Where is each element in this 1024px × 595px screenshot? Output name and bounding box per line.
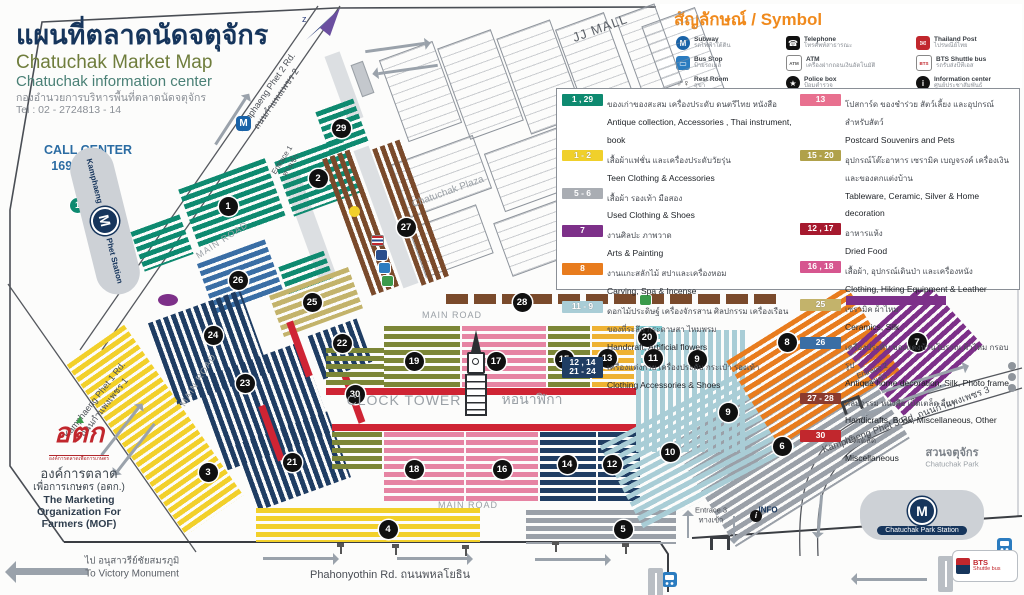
facility-chip-icon [376,250,387,260]
section-badge-27: 27 [397,218,416,237]
legend-badge: 12 , 17 [800,223,841,235]
legend-row: 27 - 28ศิลปกรรม หนังสือ เบ็ดเตล็ด อื่นๆH… [800,393,1014,429]
bts-shuttle-stop-badge: BTS Shuttle bus [952,550,1018,582]
mof-en1: The Marketing [26,494,132,506]
bus-stop-pole-icon [462,545,469,556]
section-badge-24: 24 [204,326,223,345]
pole-post [625,547,627,554]
mof-block: อตก องค์การตลาดเพื่อการเกษตร องค์การตลาด… [26,420,132,530]
compass-icon: z [300,6,344,48]
legend-text-en: Tableware, Ceramic, Silver & Home decora… [845,191,979,219]
oval-icon [158,294,178,306]
legend-text-th: ดอกไม้ประดิษฐ์ เครื่องจักรสาน ศิลปกรรม เ… [607,307,788,334]
legend-text-th: ของเก่าของสะสม เครื่องประดับ ดนตรีไทย หน… [607,100,777,109]
direction-arrow [263,557,333,560]
legend-row: 30เบ็ดเตล็ดMiscellaneous [800,430,1014,466]
market-section [332,424,636,431]
mof-th1: องค์การตลาด [26,467,132,482]
section-badge-14: 14 [558,455,577,474]
mrt-logo-icon: M [908,497,936,525]
victory-monument-en: To Victory Monument [85,569,179,580]
direction-arrow [733,516,735,538]
legend-text-en: Postcard Souvenirs and Pets [845,135,955,145]
legend-text-en: Arts & Painting [607,248,663,258]
legend-text-en: Carving, Spa & Incense [607,286,696,296]
arrow-head [424,37,432,50]
category-legend-left: 1 , 29ของเก่าของสะสม เครื่องประดับ ดนตรี… [562,94,794,287]
legend-text-en: Handcraft, Artificial flowers [607,342,707,352]
facility-chip-icon [382,276,393,286]
section-badge-26: 26 [229,271,248,290]
arrow-head [605,554,611,566]
legend-badge: 16 , 18 [800,261,841,273]
mrt-logo-icon: M [88,204,122,238]
bus-stop-pole-icon [392,544,399,555]
gate-icon [710,536,730,550]
bus-stop-pole-icon [552,541,559,552]
legend-badge: 1 , 29 [562,94,603,106]
legend-badge: 25 [800,299,841,311]
information-icon: i [750,510,762,522]
legend-row: 11 - 9ดอกไม้ประดิษฐ์ เครื่องจักรสาน ศิลป… [562,301,794,355]
legend-text-th: งานแกะสลักไม้ สปาและเครื่องหอม [607,269,727,278]
legend-text-th: เสื้อผ้า รองเท้า มือสอง [607,194,682,203]
direction-arrow [16,568,88,575]
legend-row: 25เซรามิค ผ้าไหมCeramics, Silk [800,299,1014,335]
section-badge-25: 25 [303,293,322,312]
arrow-shaft [535,558,605,561]
legend-text-en: Handicrafts, Book, Miscellaneous, Other [845,415,997,425]
market-section [332,432,382,472]
legend-row: 16 , 18เสื้อผ้า, อุปกรณ์เดินป่า และเครื่… [800,261,1014,297]
arrow-head [333,553,339,565]
legend-text-en: Used Clothing & Shoes [607,210,695,220]
svg-text:z: z [302,14,307,24]
arrow-head [682,510,694,516]
section-badge-19: 19 [405,352,424,371]
main-road-label: MAIN ROAD [422,310,482,320]
arrow-shaft [16,568,88,575]
mof-logo: อตก [26,420,132,447]
mof-en2: Organization For [26,506,132,518]
legend-badge: 11 - 9 [562,301,603,313]
legend-badge: 5 - 6 [562,188,603,200]
section-badge-9: 9 [719,403,738,422]
section-badge-4: 4 [379,520,398,539]
clock-tower-en: CLOCK TOWER [347,392,462,408]
legend-text-en: Ceramics, Silk [845,322,899,332]
legend-text-en: Antique collection, Accessories , Thai i… [607,117,792,145]
section-badge-2: 2 [309,169,328,188]
section-badge-21: 21 [283,453,302,472]
mrt-sign-icon: M [236,116,251,131]
section-badge-22: 22 [333,334,352,353]
legend-row: 7งานศิลปะ ภาพวาดArts & Painting [562,225,794,261]
legend-text-th: อาหารแห้ง [845,229,883,238]
mof-en3: Farmers (MOF) [26,518,132,530]
direction-arrow [687,516,689,538]
legend-badge: 1 - 2 [562,150,603,162]
legend-text-th: ศิลปกรรม หนังสือ เบ็ดเตล็ด อื่นๆ [845,399,955,408]
victory-monument-th: ไป อนุสาวรีย์ชัยสมรภูมิ [85,554,180,569]
legend-text-en: Clothing, Hiking Equipment & Leather [845,284,987,294]
bus-stop-pole-icon [622,543,629,554]
bts-logo-icon [956,558,970,574]
dot-icon [349,206,360,217]
pillar-tick [655,573,657,595]
legend-text-th: เครื่องแต่งกาย เครื่องประดับ กระเป๋า รอง… [607,363,759,372]
legend-badge: 12 , 1421 - 24 [562,357,603,379]
legend-badge: 8 [562,263,603,275]
section-badge-16: 16 [493,460,512,479]
main-road-label: MAIN ROAD [438,500,498,510]
legend-text-en: Clothing Accessories & Shoes [607,380,720,390]
bus-stop-pole-icon [337,543,344,554]
legend-row: 15 - 20อุปกรณ์โต๊ะอาหาร เซรามิค เบญจรงค์… [800,150,1014,222]
legend-text-en: Miscellaneous [845,453,899,463]
legend-text-th: เครื่องประดับ ของแต่งบ้านโบราณ ผ้าไหม กร… [845,343,1009,370]
bts-label-2: Shuttle bus [973,567,1001,573]
arrow-head [851,574,857,586]
arrow-shaft [733,516,735,538]
legend-text-th: โปสการ์ด ของชำร่วย สัตว์เลี้ยง และอุปกรณ… [845,100,994,127]
legend-badge: 7 [562,225,603,237]
arrow-head [372,68,380,81]
legend-text-th: เสื้อผ้า, อุปกรณ์เดินป่า และเครื่องหนัง [845,267,973,276]
pillar-tick [945,561,947,587]
mof-th2: เพื่อการเกษตร (อตก.) [26,482,132,494]
legend-text-en: Teen Clothing & Accessories [607,173,715,183]
chatuchak-market-map: แผนที่ตลาดนัดจตุจักร Chatuchak Market Ma… [0,0,1024,595]
market-section [256,508,480,542]
arrow-shaft [817,494,823,532]
section-badge-12: 12 [603,455,622,474]
legend-row: 13โปสการ์ด ของชำร่วย สัตว์เลี้ยง และอุปก… [800,94,1014,148]
clock-tower-th: หอนาฬิกา [502,389,563,411]
phahonyothin-label: Phahonyothin Rd. ถนนพหลโยธิน [310,565,470,583]
arrow-head [812,532,824,539]
legend-row: 8งานแกะสลักไม้ สปาและเครื่องหอมCarving, … [562,263,794,299]
pole-post [340,547,342,554]
legend-text-th: อุปกรณ์โต๊ะอาหาร เซรามิค เบญจรงค์ เครื่อ… [845,156,1009,183]
arrow-head [5,561,16,583]
legend-badge: 26 [800,337,841,349]
section-badge-3: 3 [199,463,218,482]
section-badge-18: 18 [405,460,424,479]
legend-badge: 13 [800,94,841,106]
direction-arrow [397,557,467,560]
section-badge-6: 6 [773,437,792,456]
category-legend: 1 , 29ของเก่าของสะสม เครื่องประดับ ดนตรี… [556,88,1020,290]
legend-badge: 30 [800,430,841,442]
market-section [384,432,464,502]
arrow-shaft [263,557,333,560]
gate-pillar-icon [938,556,953,592]
legend-row: 26เครื่องประดับ ของแต่งบ้านโบราณ ผ้าไหม … [800,337,1014,391]
facility-chip-icon [379,263,390,273]
arrow-shaft [397,557,467,560]
legend-text-th: เสื้อผ้าแฟชั่น และเครื่องประดับวัยรุ่น [607,156,731,165]
direction-arrow [535,558,605,561]
thai-flag-icon [372,236,383,245]
section-badge-5: 5 [614,520,633,539]
section-badge-28: 28 [513,293,532,312]
market-section [130,214,193,271]
arrow-shaft [687,516,689,538]
pole-post [395,548,397,555]
legend-text-th: เบ็ดเตล็ด [845,436,876,445]
legend-row: 5 - 6เสื้อผ้า รองเท้า มือสองUsed Clothin… [562,188,794,224]
station-name-part1: Kamphaeng [85,158,105,205]
section-badge-1: 1 [219,197,238,216]
entrance-3-label: Entrace 3ทางเข้า [695,506,727,527]
legend-text-th: เซรามิค ผ้าไหม [845,305,899,314]
legend-row: 1 , 29ของเก่าของสะสม เครื่องประดับ ดนตรี… [562,94,794,148]
legend-text-th: งานศิลปะ ภาพวาด [607,231,672,240]
legend-row: 1 - 2เสื้อผ้าแฟชั่น และเครื่องประดับวัยร… [562,150,794,186]
legend-row: 12 , 17อาหารแห้งDried Food [800,223,1014,259]
clock-tower-icon [462,330,490,418]
legend-row: 12 , 1421 - 24เครื่องแต่งกาย เครื่องประด… [562,357,794,393]
mof-caption: องค์การตลาดเพื่อการเกษตร [49,455,109,463]
gate-pillar-icon [648,568,663,595]
station-name-part2: Phet Station [105,237,125,284]
legend-badge: 27 - 28 [800,393,841,405]
mrt-chatuchak-park-station: M Chatuchak Park Station [860,490,984,540]
arrow-shaft [857,578,927,581]
section-badge-29: 29 [332,119,351,138]
leaf-icon [76,416,84,423]
section-badge-10: 10 [661,443,680,462]
pole-post [465,549,467,556]
station-name: Chatuchak Park Station [877,526,967,535]
category-legend-right: 13โปสการ์ด ของชำร่วย สัตว์เลี้ยง และอุปก… [800,94,1014,287]
market-section [326,348,384,388]
legend-badge: 15 - 20 [800,150,841,162]
direction-arrow [817,494,823,532]
bus-icon [662,572,677,587]
legend-text-en: Dried Food [845,246,887,256]
direction-arrow [857,578,927,581]
section-badge-23: 23 [236,374,255,393]
pole-post [555,545,557,552]
legend-text-en: Antique home decoration, Silk, Photo fra… [845,378,1009,388]
